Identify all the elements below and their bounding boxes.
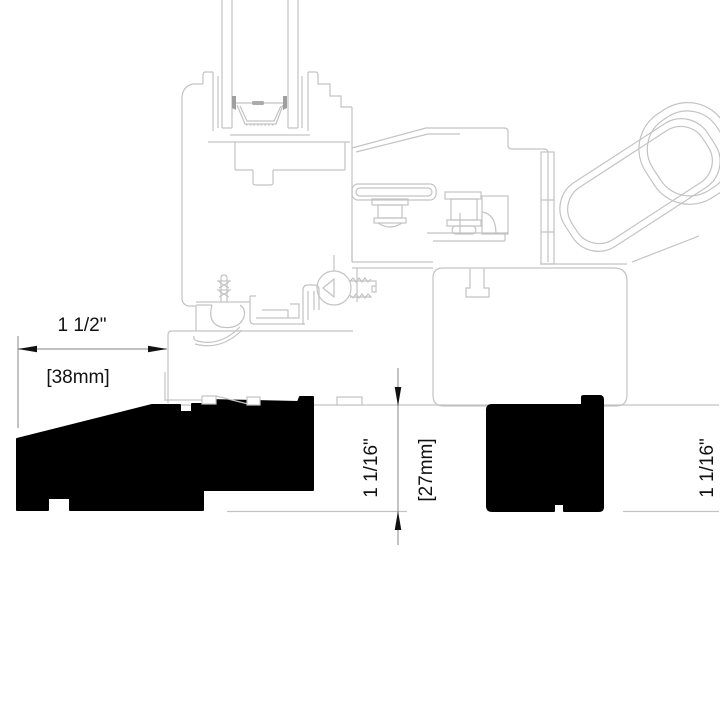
- sash-profile: [182, 72, 352, 331]
- glazing-spacer: [232, 96, 287, 125]
- dim-height-right-inches-label: 1 1/16": [697, 438, 719, 498]
- frame-sill-outline: [168, 107, 433, 403]
- dimension-height-left: [395, 368, 402, 545]
- technical-drawing-page: 1 1/2" [38mm] 1 1/16" [27mm] 1 1/16": [0, 0, 720, 720]
- profiles: [17, 396, 603, 511]
- left-sill-nosing-profile: [17, 397, 313, 510]
- dim-width-mm-label: [38mm]: [46, 367, 109, 389]
- dim-height-left-mm-label: [27mm]: [416, 438, 438, 501]
- dim-width-inches-label: 1 1/2": [57, 315, 106, 337]
- dim-height-left-inches-label: 1 1/16": [361, 438, 383, 498]
- window-section-drawing: [168, 0, 720, 406]
- right-stop-profile: [487, 396, 603, 511]
- crank-handle: [541, 86, 720, 273]
- glass-panes: [222, 0, 298, 128]
- technical-drawing-canvas: [0, 0, 720, 720]
- weatherstrip-details: [194, 240, 376, 346]
